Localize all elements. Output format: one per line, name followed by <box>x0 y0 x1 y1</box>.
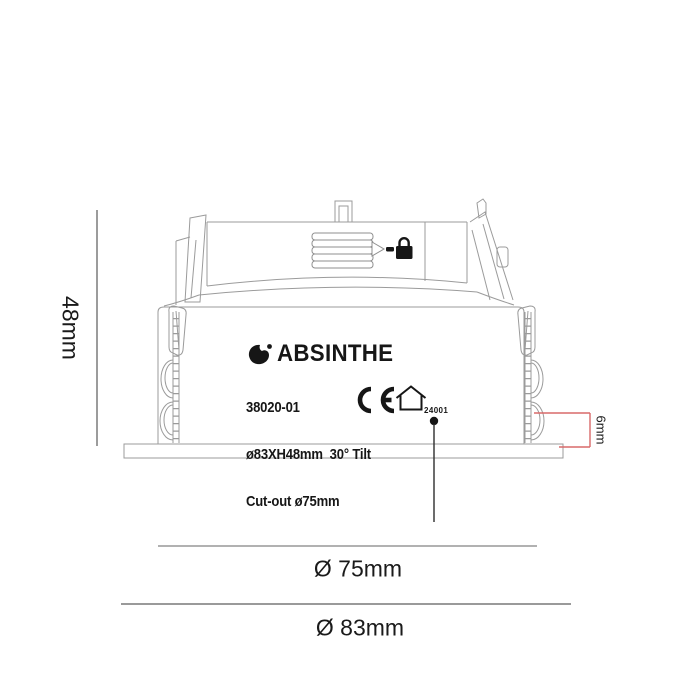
cutout-line: Cut-out ø75mm <box>246 494 371 510</box>
heatsink-fins <box>312 233 373 268</box>
technical-drawing-page: 48mm 6mm Ø 75mm Ø 83mm ABSINTHE 38020-01… <box>0 0 700 700</box>
gimbal-outline <box>164 199 514 306</box>
spring-clip-right <box>518 306 544 443</box>
cert-number: 24001 <box>424 406 448 415</box>
cutout-dimension-label: Ø 75mm <box>314 556 402 583</box>
height-dimension-label: 48mm <box>57 296 84 360</box>
callout-leader <box>430 417 438 522</box>
brand-name: ABSINTHE <box>277 340 393 368</box>
overall-dimension-label: Ø 83mm <box>316 615 404 642</box>
lock-icon <box>386 238 413 259</box>
spring-clip-left <box>160 306 186 443</box>
right-arrow-icon <box>372 242 384 256</box>
bird-logo-icon <box>246 342 273 366</box>
spec-line: ø83XH48mm 30° Tilt <box>246 447 371 463</box>
ce-mark-icon <box>353 386 399 414</box>
recess-depth-dimension-label: 6mm <box>594 416 609 445</box>
brand-logo: ABSINTHE <box>246 340 402 368</box>
